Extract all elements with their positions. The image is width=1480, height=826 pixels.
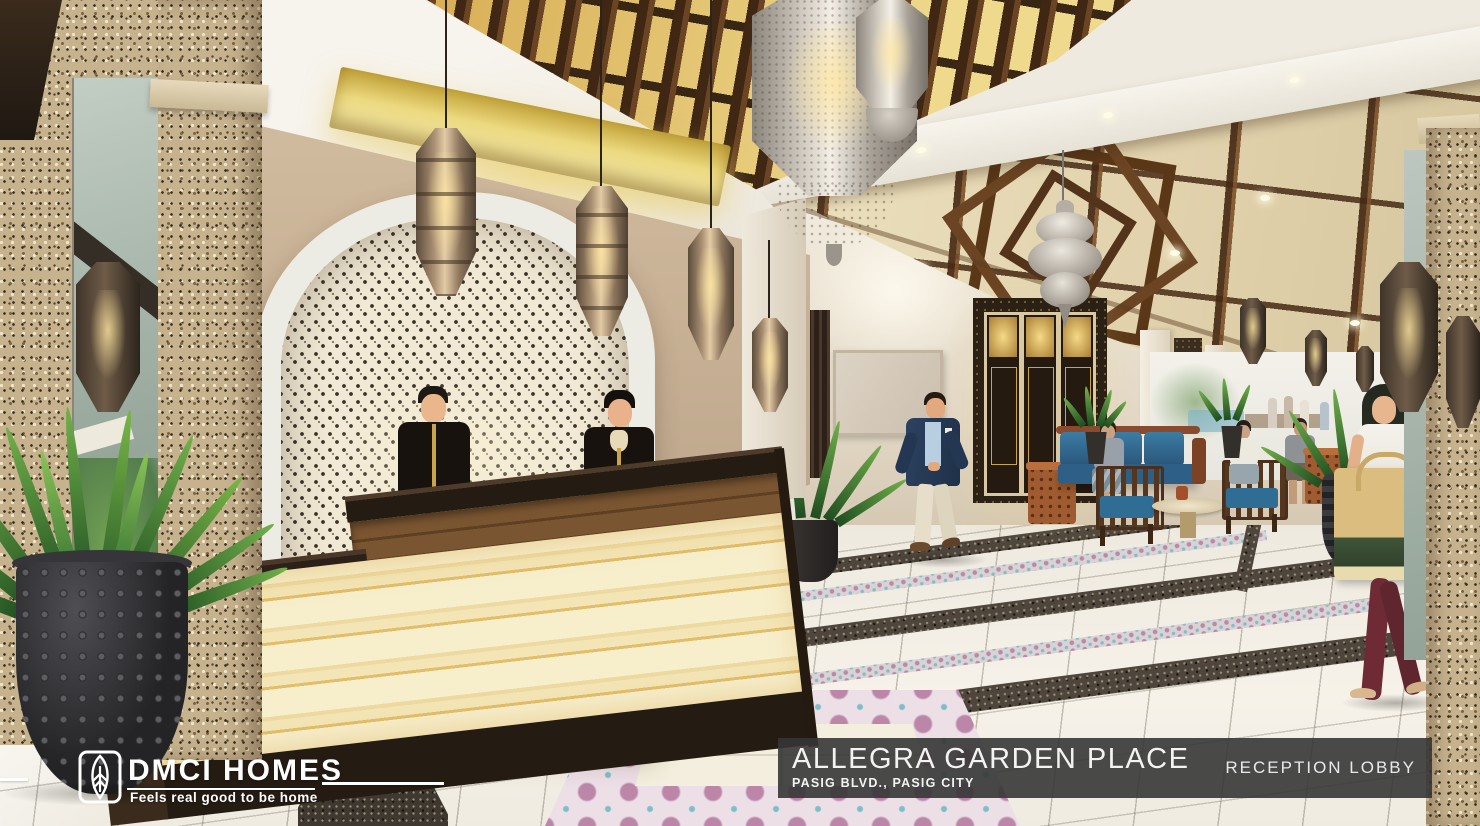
view-label: RECEPTION LOBBY bbox=[1225, 758, 1416, 778]
lantern-glow bbox=[758, 332, 782, 392]
skirt bbox=[1229, 464, 1259, 484]
dmci-tree-icon bbox=[78, 750, 122, 804]
lantern-finial bbox=[826, 244, 842, 266]
shoe bbox=[910, 542, 930, 551]
flat-shoe bbox=[1350, 688, 1376, 698]
face bbox=[421, 394, 446, 423]
lantern-cord bbox=[768, 240, 770, 320]
lantern-cord bbox=[600, 0, 602, 190]
chandelier-tip bbox=[1058, 304, 1072, 328]
elevator-door-panel bbox=[1028, 367, 1054, 465]
planter-small bbox=[1076, 398, 1116, 464]
lantern-cord bbox=[445, 0, 447, 132]
lantern-glow bbox=[695, 248, 727, 332]
face bbox=[608, 399, 632, 427]
wall-lantern bbox=[1446, 316, 1480, 428]
downlight bbox=[916, 146, 927, 154]
moroccan-lantern bbox=[752, 318, 788, 412]
tiered-chandelier bbox=[1028, 200, 1102, 330]
downlight bbox=[1170, 250, 1180, 256]
project-title-bar: ALLEGRA GARDEN PLACE PASIG BLVD., PASIG … bbox=[778, 738, 1432, 798]
wall-lantern bbox=[76, 262, 140, 412]
project-title-block: ALLEGRA GARDEN PLACE PASIG BLVD., PASIG … bbox=[792, 744, 1189, 791]
chair-leg bbox=[1100, 526, 1105, 546]
moroccan-lantern-large bbox=[856, 0, 928, 118]
lantern-glow bbox=[1308, 338, 1323, 374]
shirt bbox=[925, 422, 941, 466]
downlight bbox=[1260, 195, 1270, 201]
round-coffee-table bbox=[1152, 498, 1224, 542]
elevator-transom-light bbox=[989, 317, 1017, 357]
brand-tagline: Feels real good to be home bbox=[130, 790, 318, 805]
table-base bbox=[1180, 512, 1196, 538]
corridor-lantern bbox=[1305, 330, 1327, 386]
hand bbox=[928, 462, 940, 471]
chair-cushion bbox=[1100, 496, 1154, 518]
table-decor bbox=[1176, 486, 1188, 500]
wall-lantern bbox=[1380, 262, 1438, 412]
downlight bbox=[1350, 320, 1360, 326]
face bbox=[926, 398, 945, 419]
logo-rule-right bbox=[322, 782, 444, 785]
lantern-glow bbox=[1244, 308, 1262, 350]
logo-rule-left bbox=[0, 778, 28, 781]
sofa-back-cushion bbox=[1144, 432, 1184, 466]
brand-logo-lockup: DMCI HOMES Feels real good to be home bbox=[0, 742, 480, 822]
chair-leg bbox=[1226, 516, 1231, 534]
elevator-door-panel bbox=[991, 367, 1017, 465]
lantern-bands bbox=[576, 186, 628, 336]
reception-lobby-rendering: ALLEGRA GARDEN PLACE PASIG BLVD., PASIG … bbox=[0, 0, 1480, 826]
walking-man bbox=[898, 392, 968, 560]
lantern-glow bbox=[1392, 288, 1426, 380]
lantern-glow bbox=[870, 18, 914, 94]
face bbox=[1372, 396, 1396, 424]
distant-person bbox=[1268, 398, 1277, 428]
downlight bbox=[1103, 111, 1114, 119]
brand-name: DMCI HOMES bbox=[128, 754, 343, 788]
chandelier-chain bbox=[1062, 150, 1064, 202]
project-name: ALLEGRA GARDEN PLACE bbox=[792, 743, 1189, 775]
stone-pillar-foreground bbox=[1426, 128, 1480, 826]
moroccan-lantern bbox=[576, 186, 628, 336]
chandelier-tier bbox=[1040, 272, 1090, 308]
sofa-armrest bbox=[1192, 438, 1206, 484]
planter-pot bbox=[1220, 426, 1244, 458]
trouser-leg bbox=[933, 483, 958, 543]
elevator-door bbox=[987, 315, 1019, 493]
downlight bbox=[1289, 76, 1300, 84]
chair-leg bbox=[1272, 514, 1277, 532]
pillar-header bbox=[72, 0, 158, 82]
trouser-leg bbox=[914, 484, 934, 545]
corridor-lantern bbox=[1240, 298, 1266, 364]
plant-leaf bbox=[1232, 383, 1253, 421]
lounge-chair bbox=[1096, 466, 1158, 546]
lantern-cord bbox=[710, 0, 712, 230]
moroccan-lantern bbox=[688, 228, 734, 360]
planter-small bbox=[1212, 390, 1252, 458]
project-location: PASIG BLVD., PASIG CITY bbox=[792, 776, 974, 790]
planter-pot bbox=[1084, 432, 1108, 464]
lantern-bands bbox=[416, 128, 476, 296]
moroccan-lantern bbox=[416, 128, 476, 296]
lantern-glow bbox=[90, 290, 126, 380]
